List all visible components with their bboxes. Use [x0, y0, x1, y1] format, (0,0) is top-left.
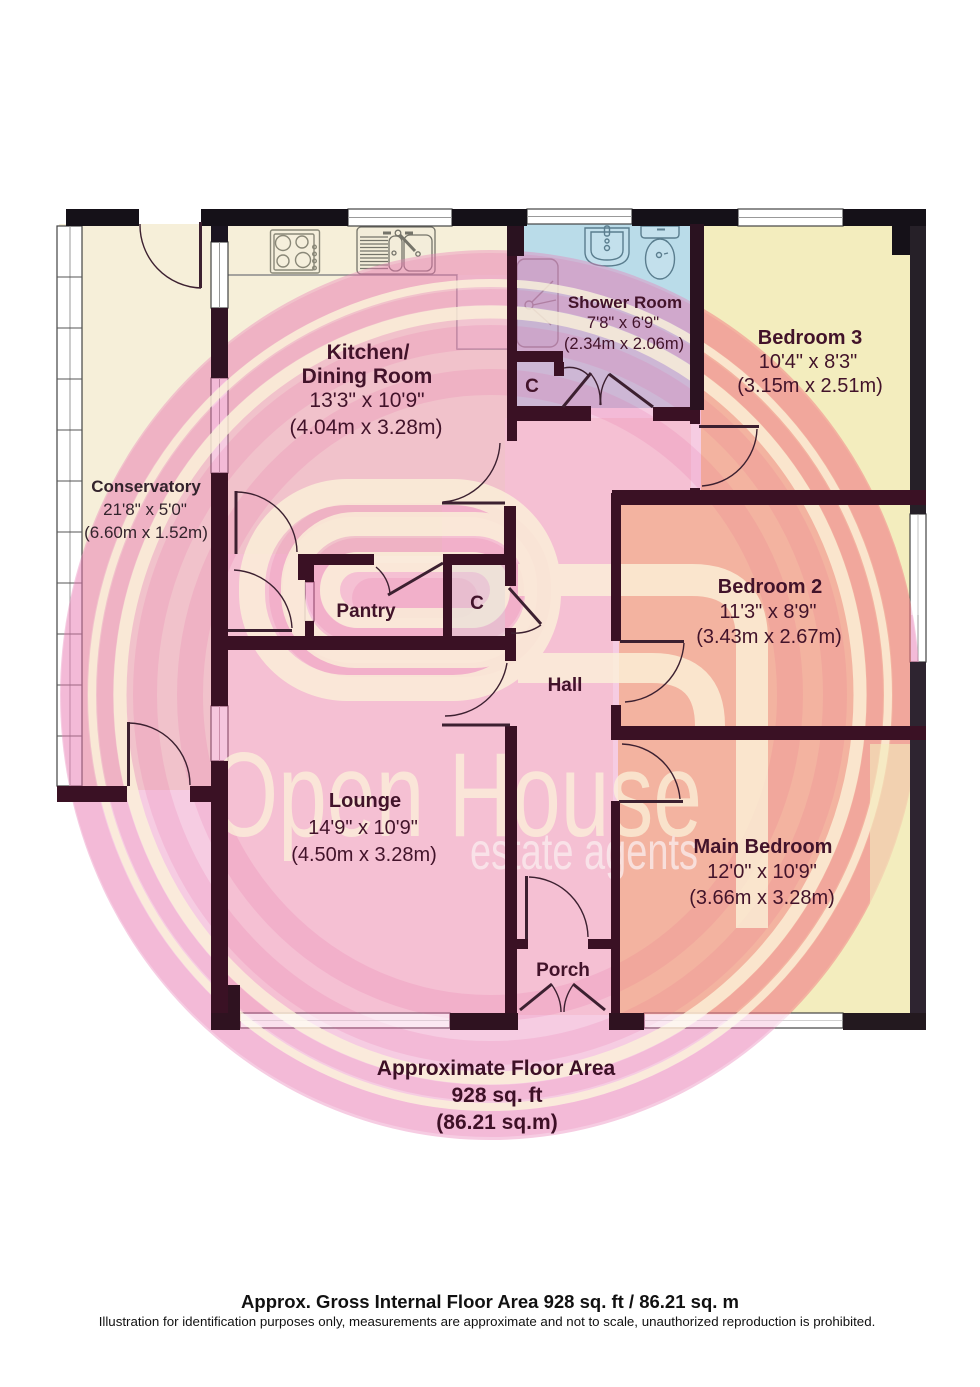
svg-text:12'0" x 10'9": 12'0" x 10'9"	[707, 861, 817, 883]
svg-text:(3.15m x 2.51m): (3.15m x 2.51m)	[737, 375, 883, 397]
svg-text:10'4" x 8'3": 10'4" x 8'3"	[759, 351, 858, 373]
svg-text:estate agents: estate agents	[470, 823, 698, 881]
svg-text:Porch: Porch	[536, 960, 590, 981]
svg-text:C: C	[525, 376, 539, 397]
svg-text:7'8" x 6'9": 7'8" x 6'9"	[587, 314, 659, 332]
svg-text:(3.66m x 3.28m): (3.66m x 3.28m)	[689, 887, 835, 909]
svg-text:11'3" x 8'9": 11'3" x 8'9"	[719, 601, 816, 623]
svg-text:Shower Room: Shower Room	[568, 293, 682, 312]
svg-text:Dining Room: Dining Room	[302, 365, 433, 388]
svg-text:C: C	[470, 593, 484, 614]
svg-text:(4.50m x 3.28m): (4.50m x 3.28m)	[291, 844, 437, 866]
svg-text:Pantry: Pantry	[336, 601, 396, 622]
svg-text:Conservatory: Conservatory	[91, 477, 201, 496]
svg-text:928 sq. ft: 928 sq. ft	[451, 1084, 542, 1107]
svg-text:Kitchen/: Kitchen/	[327, 341, 410, 364]
svg-text:Main Bedroom: Main Bedroom	[694, 836, 833, 858]
svg-text:Approx. Gross Internal Floor A: Approx. Gross Internal Floor Area 928 sq…	[241, 1291, 739, 1312]
svg-text:(2.34m x 2.06m): (2.34m x 2.06m)	[564, 335, 684, 353]
svg-text:(3.43m x 2.67m): (3.43m x 2.67m)	[696, 626, 842, 648]
svg-text:Bedroom 2: Bedroom 2	[718, 576, 822, 598]
svg-text:13'3" x 10'9": 13'3" x 10'9"	[309, 389, 424, 412]
svg-text:Approximate Floor Area: Approximate Floor Area	[377, 1057, 616, 1080]
svg-text:Illustration for identificatio: Illustration for identification purposes…	[99, 1314, 876, 1329]
svg-text:Lounge: Lounge	[329, 790, 401, 812]
svg-text:(86.21 sq.m): (86.21 sq.m)	[436, 1111, 557, 1134]
svg-text:Bedroom 3: Bedroom 3	[758, 327, 862, 349]
svg-text:(4.04m x 3.28m): (4.04m x 3.28m)	[290, 416, 443, 439]
svg-text:21'8" x 5'0": 21'8" x 5'0"	[103, 500, 187, 519]
svg-text:(6.60m x 1.52m): (6.60m x 1.52m)	[84, 523, 208, 542]
svg-text:Hall: Hall	[548, 675, 583, 696]
svg-text:14'9" x 10'9": 14'9" x 10'9"	[308, 817, 418, 839]
